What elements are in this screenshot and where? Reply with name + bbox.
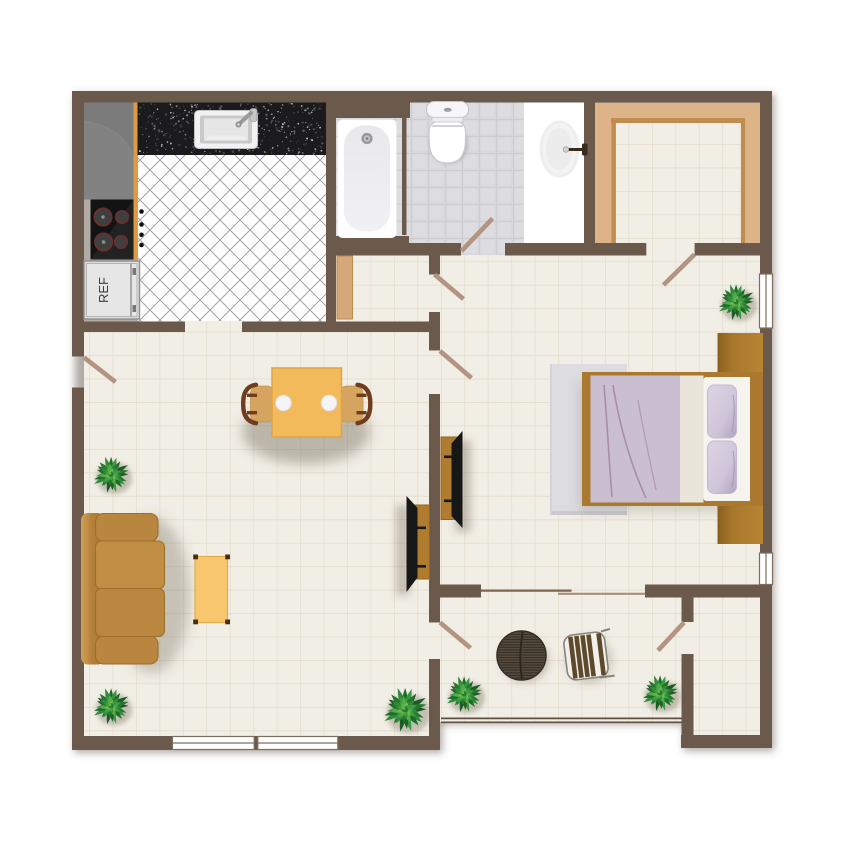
svg-text:REF: REF bbox=[96, 277, 111, 303]
